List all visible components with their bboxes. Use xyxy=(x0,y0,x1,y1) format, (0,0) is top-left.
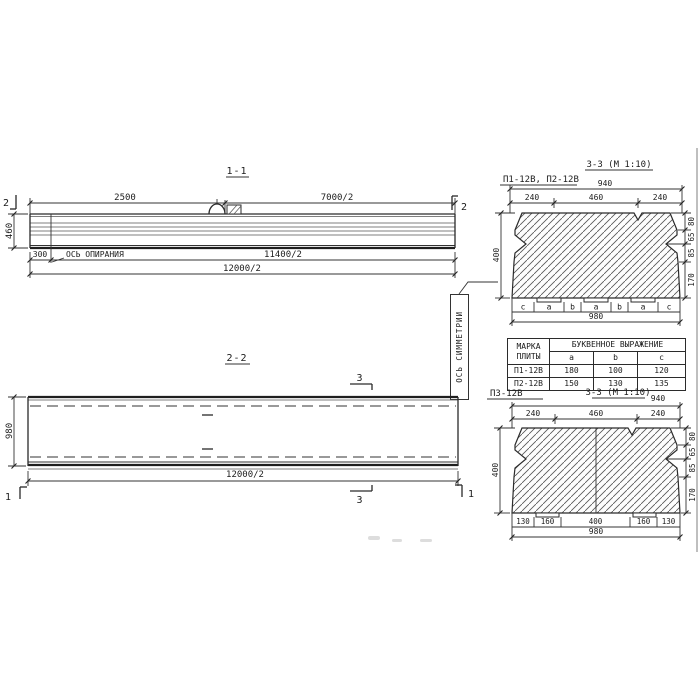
dim-240-left: 240 xyxy=(525,193,540,202)
dim-460: 460 xyxy=(5,223,15,239)
plan-length-dimension: 12000/2 xyxy=(28,470,458,486)
plate-mark-label: П3-12В xyxy=(490,389,523,399)
letter-c-2: c xyxy=(667,303,672,312)
dim-940: 940 xyxy=(651,394,666,403)
cross-section-body xyxy=(512,213,680,298)
dim-940: 940 xyxy=(598,179,613,188)
section-3-3-bottom-view: П3-12В 3-3 (М 1:10) 940 240 460 240 xyxy=(480,385,700,550)
dim-12000-2: 12000/2 xyxy=(223,264,261,274)
scan-smudge xyxy=(420,539,432,542)
section-marker-3-top: 3 xyxy=(350,373,372,390)
lifting-loop-icon xyxy=(209,199,225,214)
left-height-dim: 400 xyxy=(492,213,515,298)
scan-smudge xyxy=(392,539,402,542)
dim-7000-2: 7000/2 xyxy=(321,193,354,203)
bearing-tabs xyxy=(537,298,655,302)
scan-smudge xyxy=(368,536,380,540)
dim-2500: 2500 xyxy=(114,193,136,203)
dim-460: 460 xyxy=(589,193,604,202)
section-2-2-view: 2-2 3 980 xyxy=(0,345,490,520)
section-1-1-title-text: 1-1 xyxy=(226,166,247,177)
section-2-2-title-text: 2-2 xyxy=(226,353,247,364)
dim-400: 400 xyxy=(492,248,501,263)
table-subheader-c: c xyxy=(638,352,686,365)
detail-mark-box xyxy=(227,205,241,214)
table-header-expression: БУКВЕННОЕ ВЫРАЖЕНИЕ xyxy=(550,339,686,352)
lower-dimension-rows: 300 ОСЬ ОПИРАНИЯ 11400/2 12000/2 xyxy=(30,250,455,278)
dim-160-left: 160 xyxy=(541,517,555,526)
table-header-mark: МАРКА ПЛИТЫ xyxy=(508,339,550,365)
table-row: П1-12В 180 100 120 xyxy=(508,365,686,378)
support-axis-label: ОСЬ ОПИРАНИЯ xyxy=(66,250,124,259)
section-3-3-bottom-title: П3-12В 3-3 (М 1:10) 940 xyxy=(487,388,665,403)
section-marker-3-bottom: 3 xyxy=(350,485,372,506)
letter-a-1: a xyxy=(547,303,552,312)
marker-2-left-text: 2 xyxy=(3,198,10,209)
dim-80: 80 xyxy=(687,217,696,227)
overall-width-dim: 980 xyxy=(512,312,680,326)
slab-plan-body xyxy=(28,397,458,469)
letter-b-2: b xyxy=(617,303,622,312)
dim-170: 170 xyxy=(687,273,696,287)
dim-240-left: 240 xyxy=(526,409,541,418)
cell-mark: П1-12В xyxy=(508,365,550,378)
dim-65: 65 xyxy=(687,232,696,241)
dim-980: 980 xyxy=(5,423,15,439)
letter-values-table: МАРКА ПЛИТЫ БУКВЕННОЕ ВЫРАЖЕНИЕ a b c П1… xyxy=(507,338,686,391)
dim-85: 85 xyxy=(687,248,696,257)
marker-3-top-text: 3 xyxy=(356,373,363,384)
dim-400-bottom: 400 xyxy=(589,517,603,526)
dim-240-right: 240 xyxy=(651,409,666,418)
dim-12000-2-plan: 12000/2 xyxy=(226,470,264,480)
page-edge-line xyxy=(696,148,698,552)
dim-980: 980 xyxy=(589,312,604,321)
section-marker-2-left: 2 xyxy=(3,195,16,209)
dim-130-right: 130 xyxy=(662,517,676,526)
section-1-1-title: 1-1 xyxy=(226,166,249,177)
height-dimension: 460 xyxy=(5,214,28,248)
plan-width-dimension: 980 xyxy=(5,397,26,466)
top-dims: 240 460 240 xyxy=(512,402,680,428)
section-marker-1-left: 1 xyxy=(5,487,27,503)
dim-11400-2: 11400/2 xyxy=(264,250,302,260)
section-3-3-title-text: 3-3 (М 1:10) xyxy=(586,160,651,170)
plate-marks-label: П1-12В, П2-12В xyxy=(503,175,579,185)
table-subheader-a: a xyxy=(550,352,594,365)
dim-400: 400 xyxy=(491,463,500,478)
dim-300: 300 xyxy=(33,250,48,259)
dim-240-right: 240 xyxy=(653,193,668,202)
dim-460: 460 xyxy=(589,409,604,418)
cell-b: 100 xyxy=(594,365,638,378)
section-marker-2-right: 2 xyxy=(452,196,468,213)
cell-a: 180 xyxy=(550,365,594,378)
section-2-2-title: 2-2 xyxy=(225,353,250,364)
table-subheader-b: b xyxy=(594,352,638,365)
section-3-3-top-view: 3-3 (М 1:10) П1-12В, П2-12В 940 240 460 … xyxy=(485,155,700,335)
marker-1-right-text: 1 xyxy=(468,489,475,500)
section-1-1-view: 1-1 2500 7000/2 2 2 xyxy=(0,160,480,295)
marker-1-left-text: 1 xyxy=(5,492,12,503)
marker-2-right-text: 2 xyxy=(461,202,468,213)
dim-160-right: 160 xyxy=(637,517,651,526)
top-dimension-row: 2500 7000/2 xyxy=(30,193,455,214)
letter-a-3: a xyxy=(641,303,646,312)
left-height-dim: 400 xyxy=(491,428,515,513)
dim-980: 980 xyxy=(589,527,604,536)
section-marker-1-right: 1 xyxy=(455,485,475,500)
dim-130-left: 130 xyxy=(516,517,530,526)
drawing-sheet: 1-1 2500 7000/2 2 2 xyxy=(0,0,700,700)
section-title-text: 3-3 (М 1:10) xyxy=(585,388,650,398)
overall-width-dim: 980 xyxy=(512,527,680,541)
letter-b-1: b xyxy=(570,303,575,312)
section-3-3-top-title: 3-3 (М 1:10) П1-12В, П2-12В xyxy=(500,160,653,185)
letter-c-1: c xyxy=(521,303,526,312)
letter-a-2: a xyxy=(594,303,599,312)
marker-3-bottom-text: 3 xyxy=(356,495,363,506)
cell-c: 120 xyxy=(638,365,686,378)
